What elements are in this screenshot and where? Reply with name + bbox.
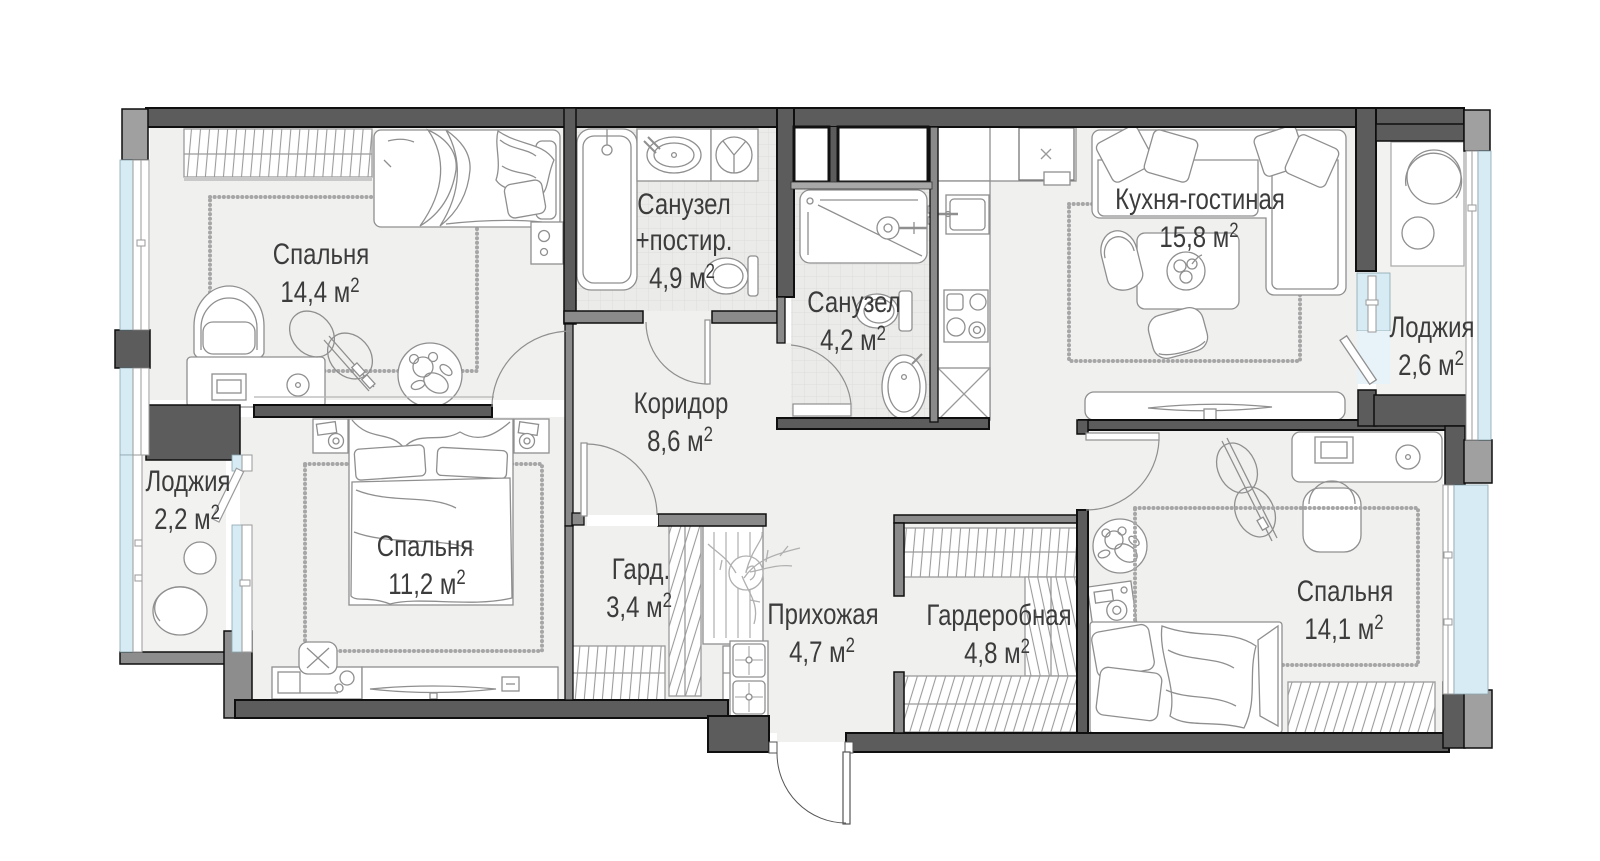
svg-text:8,6 м2: 8,6 м2 <box>647 423 713 457</box>
svg-text:Санузел: Санузел <box>807 284 900 318</box>
svg-text:+постир.: +постир. <box>636 222 733 256</box>
svg-text:4,2 м2: 4,2 м2 <box>820 322 886 356</box>
svg-text:Прихожая: Прихожая <box>767 596 878 630</box>
svg-text:Лоджия: Лоджия <box>145 463 230 497</box>
svg-text:Спальня: Спальня <box>1297 573 1393 607</box>
svg-text:Спальня: Спальня <box>273 236 369 270</box>
svg-text:Санузел: Санузел <box>637 186 730 220</box>
svg-text:Лоджия: Лоджия <box>1389 309 1474 343</box>
svg-text:15,8 м2: 15,8 м2 <box>1159 219 1238 253</box>
svg-text:Спальня: Спальня <box>377 528 473 562</box>
svg-text:3,4 м2: 3,4 м2 <box>606 589 672 623</box>
svg-text:Гард.: Гард. <box>612 551 670 585</box>
svg-text:4,7 м2: 4,7 м2 <box>789 634 855 668</box>
svg-text:14,1 м2: 14,1 м2 <box>1304 611 1383 645</box>
svg-text:11,2 м2: 11,2 м2 <box>388 566 465 600</box>
svg-text:4,8 м2: 4,8 м2 <box>964 635 1030 669</box>
svg-text:Коридор: Коридор <box>634 385 729 419</box>
svg-text:Гардеробная: Гардеробная <box>926 597 1071 631</box>
svg-text:Кухня-гостиная: Кухня-гостиная <box>1115 181 1285 215</box>
svg-text:2,2 м2: 2,2 м2 <box>154 501 220 535</box>
svg-text:2,6 м2: 2,6 м2 <box>1398 347 1464 381</box>
svg-text:14,4 м2: 14,4 м2 <box>280 274 359 308</box>
svg-text:4,9 м2: 4,9 м2 <box>649 260 715 294</box>
